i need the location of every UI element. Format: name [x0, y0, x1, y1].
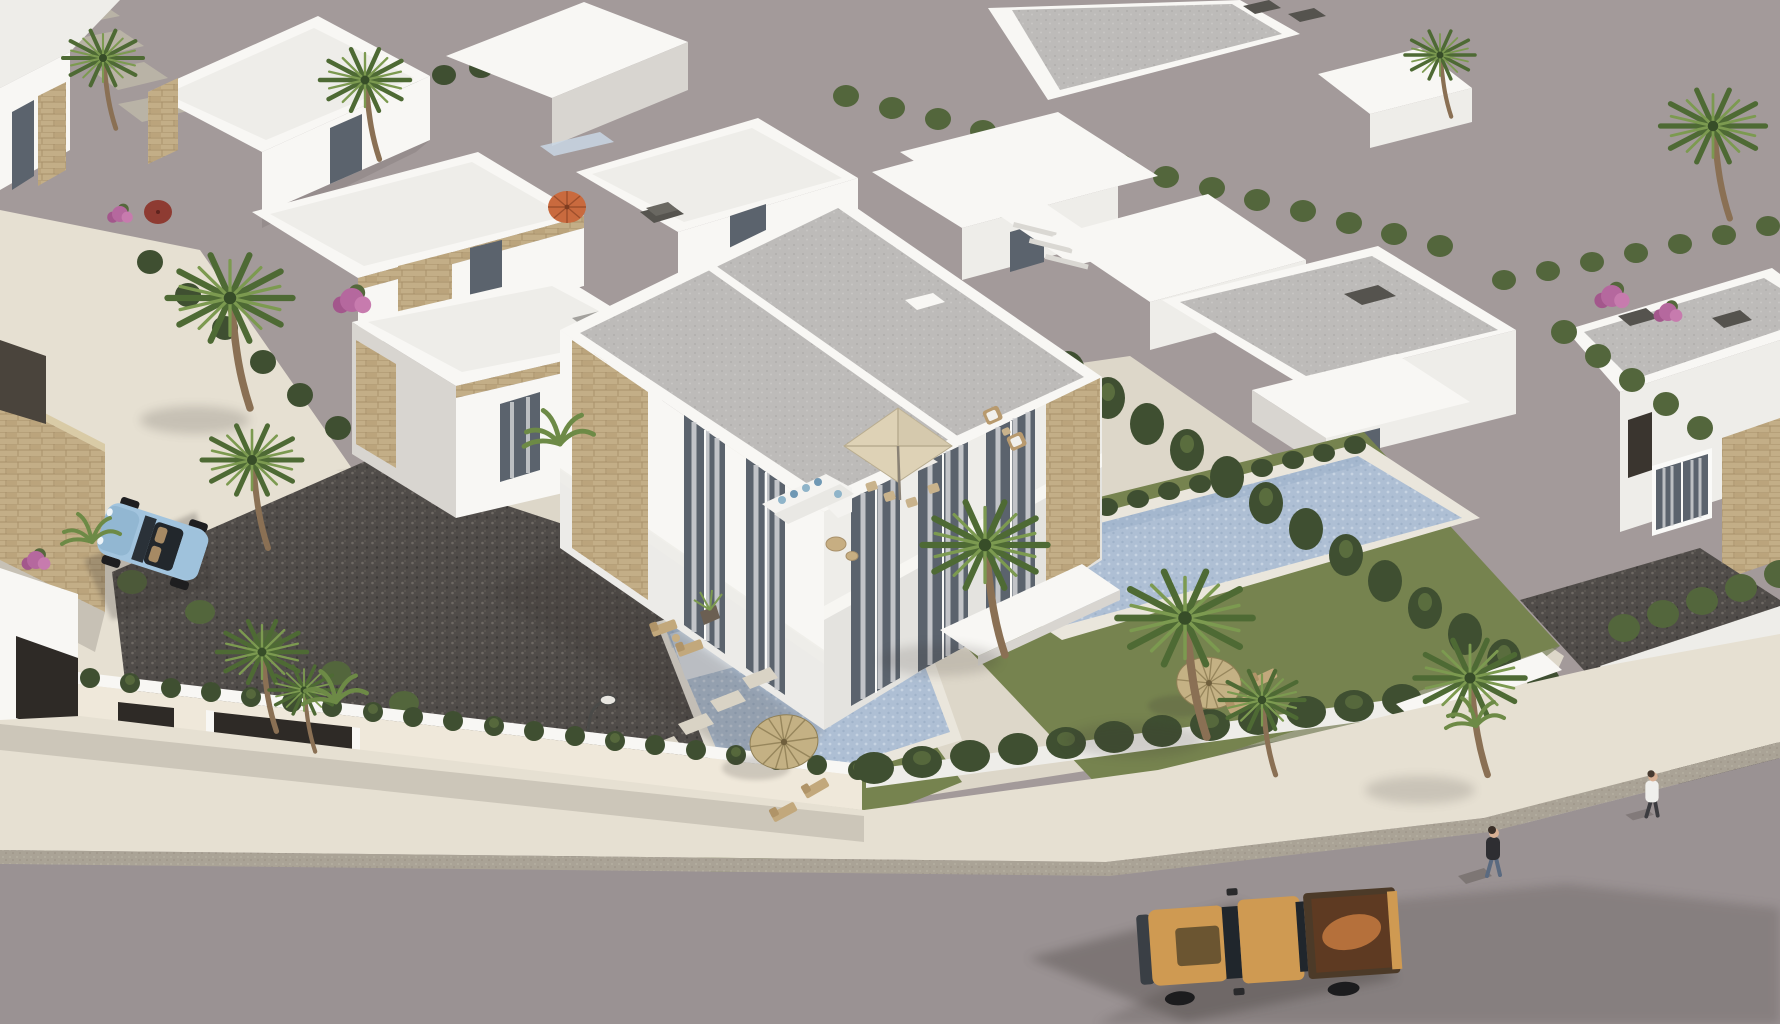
- villa-development-render: [0, 0, 1780, 1024]
- red-parasol: [144, 200, 172, 224]
- mirror: [1233, 988, 1244, 996]
- hood-scoop: [1175, 925, 1222, 966]
- cab-roof: [1237, 896, 1305, 984]
- coffee-table: [826, 537, 846, 551]
- orange-parasol: [548, 191, 586, 223]
- window: [851, 475, 900, 706]
- stone-cladding: [1046, 378, 1100, 596]
- render-canvas: Aerial 3D render of a modern white villa…: [0, 0, 1780, 1024]
- mirror: [1226, 888, 1237, 896]
- window: [746, 458, 785, 695]
